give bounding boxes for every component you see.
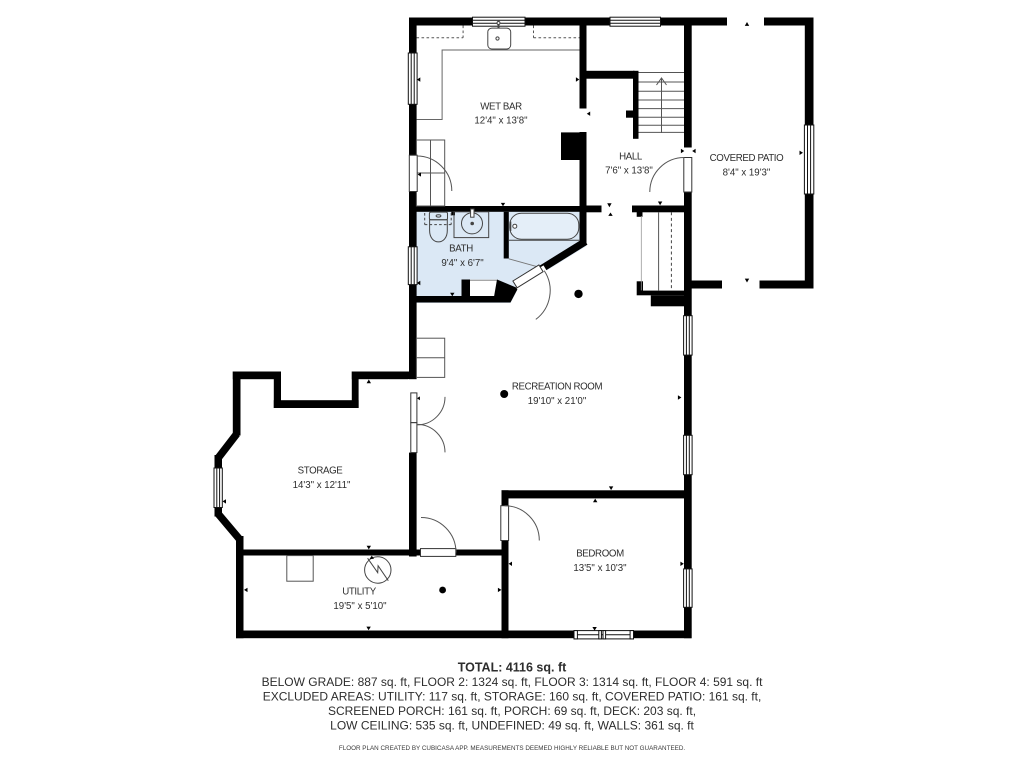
svg-text:9'4" x 6'7": 9'4" x 6'7" <box>441 258 484 269</box>
svg-text:WET BAR: WET BAR <box>480 102 522 113</box>
svg-text:LOW CEILING: 535 sq. ft, UNDEF: LOW CEILING: 535 sq. ft, UNDEFINED: 49 s… <box>330 719 694 733</box>
svg-text:19'5" x 5'10": 19'5" x 5'10" <box>333 601 387 612</box>
svg-text:EXCLUDED AREAS: UTILITY: 117 s: EXCLUDED AREAS: UTILITY: 117 sq. ft, STO… <box>263 690 762 704</box>
svg-text:19'10" x 21'0": 19'10" x 21'0" <box>528 396 587 407</box>
svg-text:14'3" x 12'11": 14'3" x 12'11" <box>293 480 351 491</box>
svg-text:FLOOR PLAN CREATED BY CUBICASA: FLOOR PLAN CREATED BY CUBICASA APP. MEAS… <box>339 745 686 752</box>
svg-text:13'5" x 10'3": 13'5" x 10'3" <box>573 563 627 574</box>
svg-text:COVERED PATIO: COVERED PATIO <box>710 153 784 164</box>
svg-text:8'4" x 19'3": 8'4" x 19'3" <box>723 168 771 179</box>
svg-text:7'6" x 13'8": 7'6" x 13'8" <box>605 166 653 177</box>
svg-text:BELOW GRADE: 887 sq. ft, FLOOR: BELOW GRADE: 887 sq. ft, FLOOR 2: 1324 s… <box>262 675 764 689</box>
svg-text:BATH: BATH <box>449 244 473 255</box>
svg-text:RECREATION ROOM: RECREATION ROOM <box>512 382 603 393</box>
svg-text:HALL: HALL <box>619 152 643 163</box>
svg-text:SCREENED PORCH: 161 sq. ft, PO: SCREENED PORCH: 161 sq. ft, PORCH: 69 sq… <box>328 704 696 718</box>
svg-text:TOTAL: 4116 sq. ft: TOTAL: 4116 sq. ft <box>458 661 567 675</box>
svg-text:12'4" x 13'8": 12'4" x 13'8" <box>474 116 528 127</box>
svg-text:BEDROOM: BEDROOM <box>576 549 624 560</box>
svg-text:UTILITY: UTILITY <box>342 587 377 598</box>
svg-text:STORAGE: STORAGE <box>298 466 344 477</box>
